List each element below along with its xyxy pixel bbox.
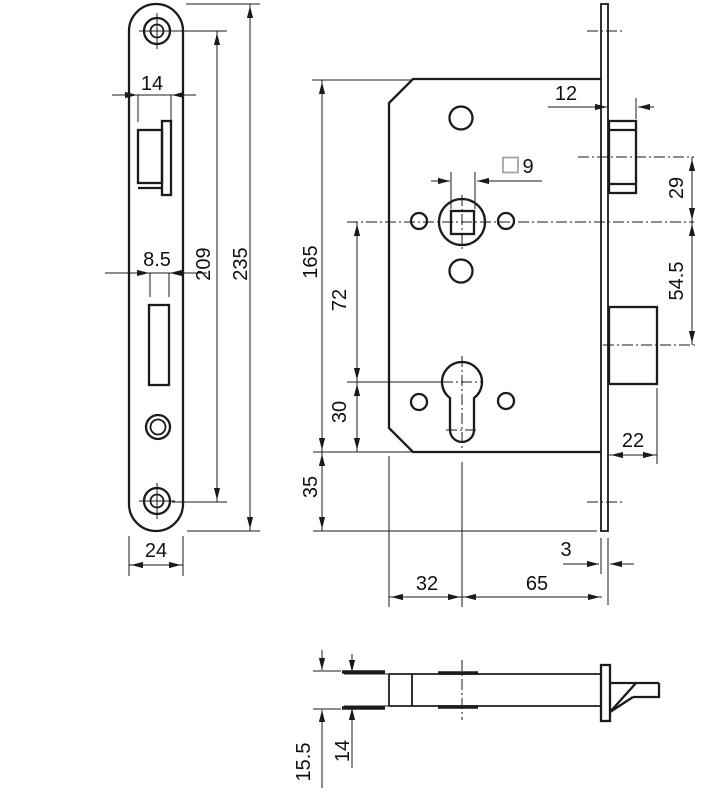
dim-label: 22 bbox=[622, 430, 644, 452]
dim-label: 24 bbox=[145, 540, 167, 562]
dim-label: 29 bbox=[666, 177, 688, 199]
background bbox=[0, 0, 701, 800]
dim-label-case-behind-axis: 32 bbox=[416, 573, 438, 595]
dim-label: 235 bbox=[230, 247, 252, 280]
dim-label: 3 bbox=[560, 539, 571, 561]
dim-label: 8.5 bbox=[143, 249, 171, 271]
technical-drawing: 14 8.5 209 235 bbox=[0, 0, 701, 800]
dim-label: 209 bbox=[193, 247, 215, 280]
dim-label: 12 bbox=[555, 83, 577, 105]
dim-label: 30 bbox=[329, 401, 351, 423]
dim-label: 72 bbox=[329, 289, 351, 311]
drawing-page: 14 8.5 209 235 bbox=[0, 0, 701, 800]
dim-label: 165 bbox=[300, 245, 322, 278]
dim-label: 9 bbox=[522, 156, 533, 178]
dim-label: 35 bbox=[300, 476, 322, 498]
dim-label: 14 bbox=[332, 740, 354, 762]
dim-label: 15.5 bbox=[293, 743, 315, 782]
dim-label-backset: 65 bbox=[526, 573, 548, 595]
dim-label: 54.5 bbox=[666, 262, 688, 301]
dim-label: 14 bbox=[141, 73, 163, 95]
